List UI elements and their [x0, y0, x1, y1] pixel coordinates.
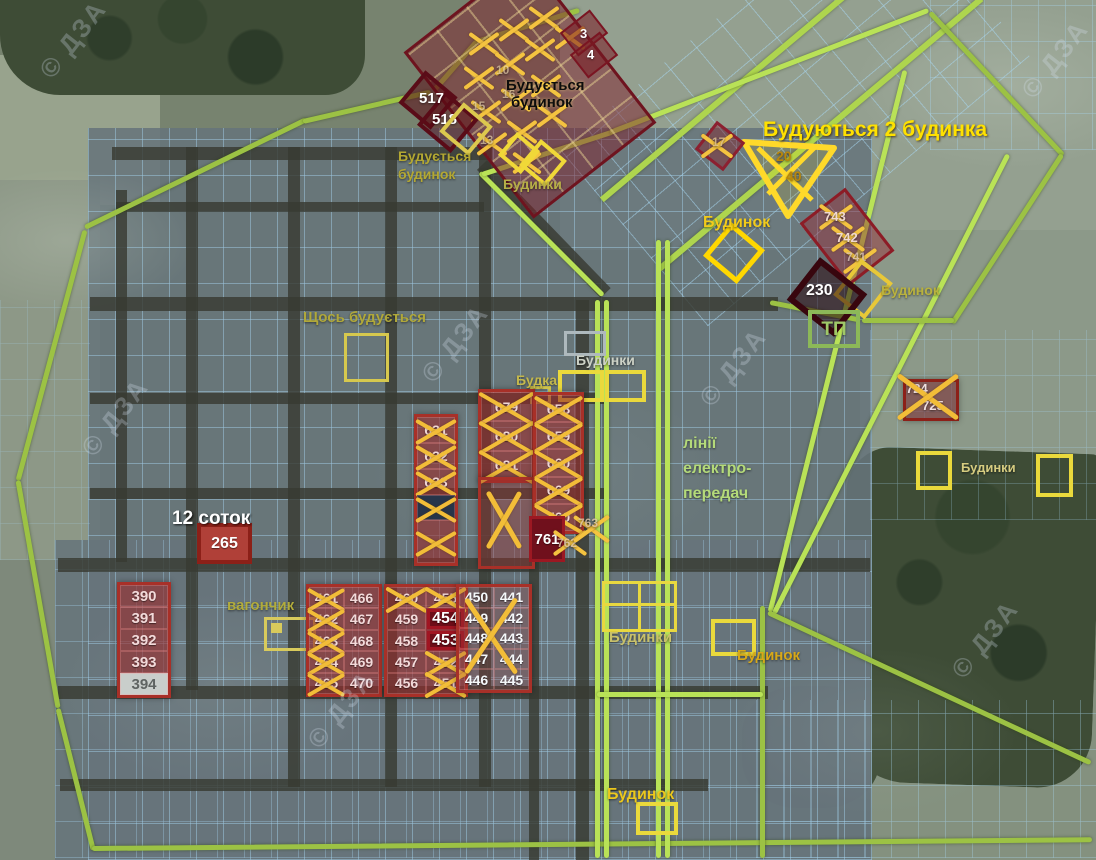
- plot-cell: 659: [536, 422, 581, 449]
- plot-number: 4: [587, 48, 594, 61]
- boundary-line: [760, 606, 765, 858]
- plot-cell: 461: [309, 587, 344, 608]
- plot-grid: [756, 700, 1096, 858]
- plot-cell: 394: [120, 673, 168, 695]
- sold-cross-icon: [478, 477, 529, 563]
- plot-cell: 462: [309, 608, 344, 629]
- plot-column-390: 390391392393394: [117, 582, 171, 698]
- plot-outline-square: [605, 370, 646, 402]
- plot-cell: 669: [536, 477, 581, 504]
- house-bottom-right-label: Будинок: [737, 648, 800, 663]
- plot-cell: 464: [309, 651, 344, 672]
- map-canvas[interactable]: 10 15 16 13 3 4 517 518 20 40 17: [0, 0, 1096, 860]
- budka-label: Будка: [516, 373, 557, 387]
- houses-grid-outline: [602, 581, 677, 632]
- sold-cross-icon: [456, 584, 526, 687]
- road: [116, 202, 484, 212]
- houses-mid-label: Будинки: [576, 353, 635, 367]
- sold-cross-icon: [899, 375, 957, 419]
- road: [288, 147, 300, 787]
- plot-number: 517: [419, 91, 444, 106]
- plot-cell: 393: [120, 651, 168, 673]
- plot-cell: 456: [387, 673, 426, 694]
- plot-cell: 391: [120, 607, 168, 629]
- house-right-label: Будинок: [881, 283, 940, 297]
- power-line-road: [656, 240, 661, 858]
- plot-cell: 468: [344, 630, 379, 651]
- plot-outline-square: [636, 802, 678, 835]
- power-line-road: [665, 240, 670, 858]
- sold-cross-icon: [524, 34, 556, 62]
- houses-top-label: Будинки: [503, 177, 562, 191]
- building-house-label-line2: будинок: [511, 95, 573, 110]
- plot-column: 631632633: [417, 417, 455, 563]
- road: [186, 147, 198, 690]
- plot-cell: 459: [387, 608, 426, 629]
- building-house-left-label-line2: будинок: [398, 167, 455, 181]
- plot-cell: 660: [536, 449, 581, 476]
- power-lines-label-line2: електро-: [683, 461, 751, 477]
- plot-column: 461462463464465: [309, 587, 344, 694]
- plot-cell: 466: [344, 587, 379, 608]
- plot-265-plate: 265: [197, 523, 252, 564]
- houses-bottom-label: Будинки: [609, 630, 672, 645]
- plot-cell: [417, 520, 455, 563]
- plot-number: 742: [836, 231, 858, 244]
- building-house-left-label-line1: Будується: [398, 149, 471, 163]
- plot-outline-square: [916, 451, 952, 490]
- house-bottom-label: Будинок: [607, 787, 674, 803]
- plot-outline-square: [344, 333, 389, 382]
- plot-cell: [417, 495, 455, 521]
- plot-cell: 458: [387, 630, 426, 651]
- plot-outline-square: [1036, 454, 1073, 497]
- boundary-line: [597, 692, 763, 697]
- sold-cross-icon: [463, 62, 495, 90]
- something-building-label: Щось будується: [303, 310, 426, 325]
- plot-column: 390391392393394: [120, 585, 168, 695]
- plot-number: 743: [824, 210, 846, 223]
- plot-cell: 680: [481, 421, 532, 450]
- building-house-label-line1: Будується: [506, 78, 585, 93]
- plot-cell: 463: [309, 630, 344, 651]
- tp-label: ТП: [821, 320, 846, 339]
- plot-column: 658659660669760: [536, 395, 581, 531]
- two-houses-building-label: Будуються 2 будинка: [763, 119, 987, 140]
- plot-cell: 658: [536, 395, 581, 422]
- plot-column-631: 631632633: [414, 414, 458, 566]
- plot-cell: 632: [417, 443, 455, 469]
- plot-cell: 457: [387, 651, 426, 672]
- plot-number: 3: [580, 27, 587, 40]
- boundary-line: [862, 318, 954, 323]
- plot-column: 460459458457456: [387, 587, 426, 694]
- road: [58, 558, 870, 572]
- plot-cell: 679: [481, 392, 532, 421]
- plot-number-faint: 763: [578, 517, 598, 529]
- plot-number: 40: [786, 169, 802, 183]
- plot-cell: 467: [344, 608, 379, 629]
- plot-cell: 390: [120, 585, 168, 607]
- power-lines-label-line3: передач: [683, 486, 748, 502]
- houses-right-label: Будинки: [961, 461, 1016, 474]
- house-top-right-label: Будинок: [703, 215, 770, 231]
- tp-substation-box: ТП: [808, 310, 860, 348]
- plot-column-679: 679680681: [478, 389, 535, 483]
- plot-number: 20: [776, 149, 792, 163]
- plot-grid: [0, 300, 90, 560]
- plot-cell: 633: [417, 469, 455, 495]
- plot-number: 265: [211, 535, 238, 553]
- plot-cell: 631: [417, 417, 455, 443]
- road: [116, 190, 127, 562]
- power-lines-label-line1: лінії: [683, 436, 716, 452]
- plot-cell: 392: [120, 629, 168, 651]
- plot-cell: 681: [481, 451, 532, 480]
- plot-cell: 460: [387, 587, 426, 608]
- plot-number-faint: 10: [496, 64, 509, 76]
- plot-column: 679680681: [481, 392, 532, 480]
- plot-number: 230: [806, 283, 833, 299]
- plot-number-faint: 17: [712, 136, 725, 148]
- twelve-sotok-label: 12 соток: [172, 509, 250, 528]
- vagonchik-label: вагончик: [227, 598, 294, 613]
